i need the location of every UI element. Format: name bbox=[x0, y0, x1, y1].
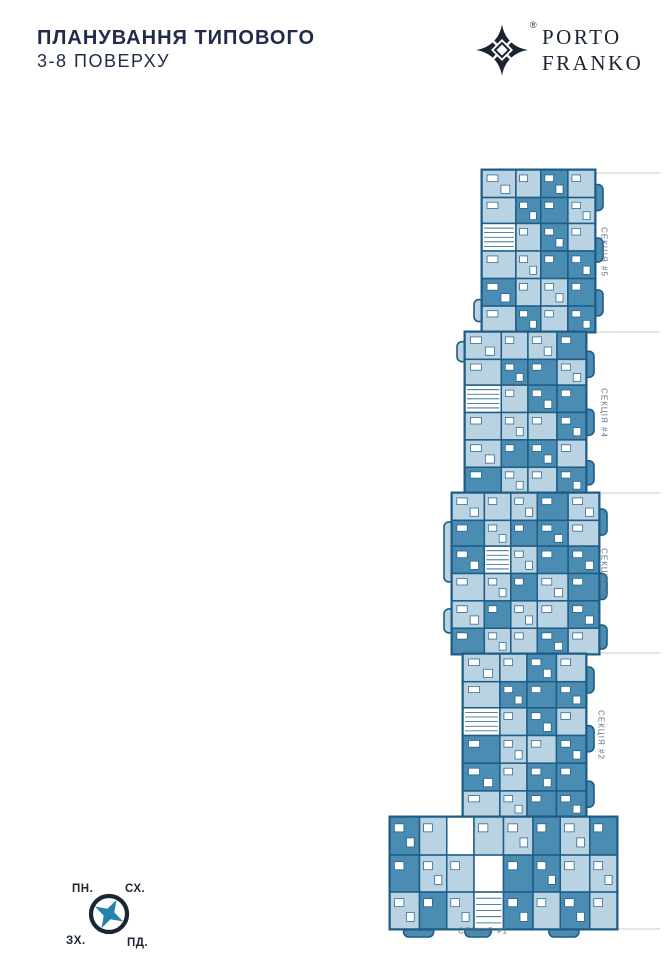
building-floor-plan: СЕКЦІЯ #5СЕКЦІЯ #4СЕКЦІЯ #3СЕКЦІЯ #2СЕКЦ… bbox=[0, 0, 671, 962]
section-label-section-1: СЕКЦІЯ #1 bbox=[458, 927, 508, 936]
compass-rose: ПН. СХ. ЗХ. ПД. bbox=[55, 875, 165, 955]
brochure-page: ПЛАНУВАННЯ ТИПОВОГО 3-8 ПОВЕРХУ ® PORTO … bbox=[0, 0, 671, 962]
floor-plan-section-3 bbox=[440, 487, 611, 666]
section-label-section-4: СЕКЦІЯ #4 bbox=[600, 388, 609, 438]
compass-icon bbox=[86, 891, 132, 937]
section-label-section-2: СЕКЦІЯ #2 bbox=[597, 710, 606, 760]
section-label-section-5: СЕКЦІЯ #5 bbox=[600, 227, 609, 277]
section-label-section-3: СЕКЦІЯ #3 bbox=[600, 548, 609, 598]
floor-plan-section-4 bbox=[453, 326, 598, 505]
compass-west-label: ЗХ. bbox=[66, 935, 86, 947]
floor-plan-section-1 bbox=[378, 811, 629, 941]
floor-plan-section-5 bbox=[470, 164, 607, 344]
compass-south-label: ПД. bbox=[127, 937, 148, 949]
floor-plan-section-2 bbox=[451, 648, 598, 829]
